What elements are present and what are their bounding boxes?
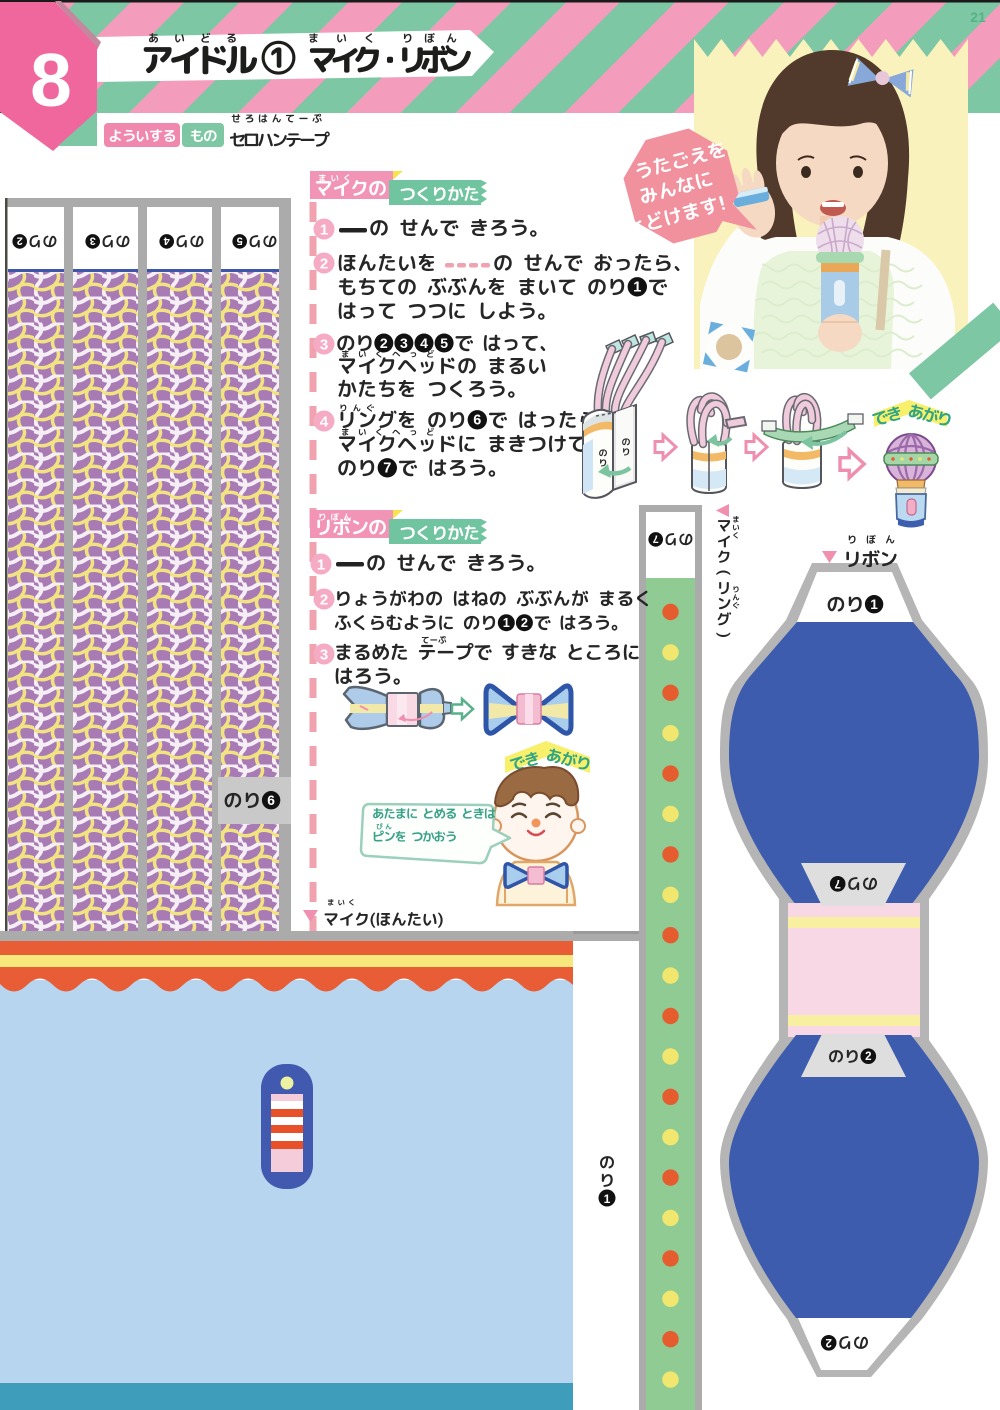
- svg-text:2: 2: [825, 1336, 831, 1348]
- svg-text:2: 2: [521, 616, 528, 630]
- svg-text:1: 1: [320, 221, 328, 238]
- svg-text:1: 1: [633, 280, 641, 296]
- svg-text:3: 3: [320, 646, 328, 663]
- svg-text:7: 7: [653, 533, 659, 545]
- svg-text:6: 6: [473, 413, 481, 429]
- svg-text:2: 2: [865, 1051, 871, 1063]
- svg-text:1: 1: [870, 597, 878, 612]
- svg-text:5: 5: [237, 235, 243, 247]
- svg-text:7: 7: [834, 877, 840, 889]
- svg-text:7: 7: [383, 461, 391, 477]
- svg-text:3: 3: [320, 336, 328, 353]
- svg-text:3: 3: [400, 335, 408, 351]
- svg-text:2: 2: [320, 591, 328, 608]
- svg-text:21: 21: [970, 9, 986, 25]
- svg-text:3: 3: [90, 235, 96, 247]
- svg-text:2: 2: [17, 235, 23, 247]
- svg-text:2: 2: [380, 335, 388, 351]
- svg-text:4: 4: [320, 413, 329, 430]
- svg-text:5: 5: [440, 335, 448, 351]
- svg-text:2: 2: [320, 255, 328, 272]
- svg-text:1: 1: [503, 616, 510, 630]
- svg-text:1: 1: [317, 556, 325, 573]
- svg-text:1: 1: [604, 1192, 611, 1206]
- svg-text:4: 4: [164, 235, 170, 247]
- svg-text:4: 4: [420, 335, 428, 351]
- svg-text:6: 6: [267, 793, 275, 808]
- svg-text:8: 8: [30, 38, 72, 122]
